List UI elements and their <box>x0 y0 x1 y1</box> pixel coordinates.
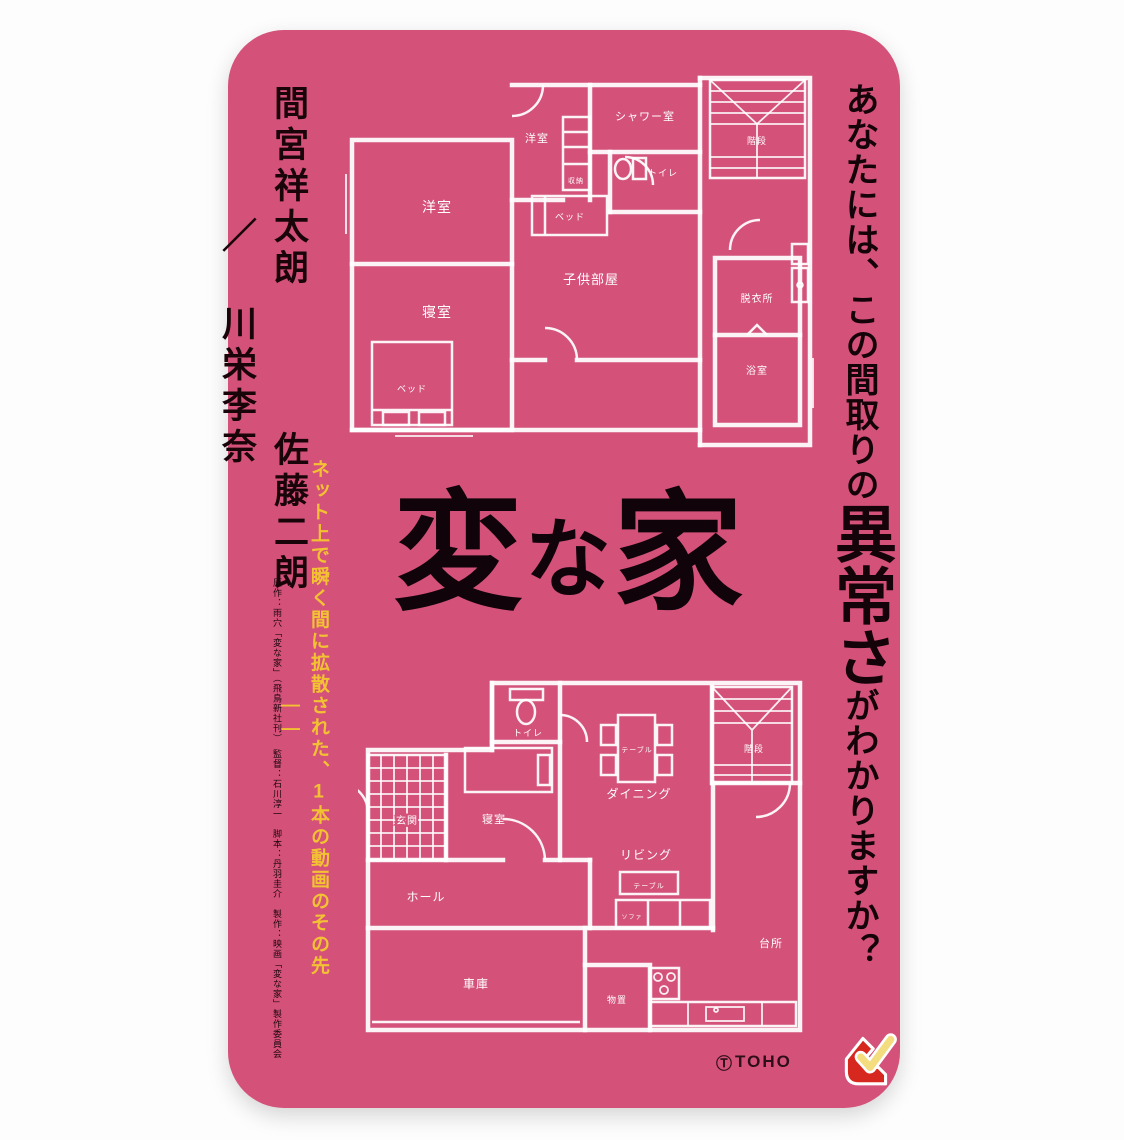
floorplan-first-floor: トイレ テーブル ダイニング 階段 玄関 寝室 ホール リビング テーブル ソフ… <box>358 670 818 1050</box>
toho-circle-t-icon: Ⓣ <box>716 1050 732 1074</box>
movie-title: 変 な 家 <box>388 478 748 628</box>
label-hall: ホール <box>406 890 445 904</box>
label-kaidan: 階段 <box>744 743 764 754</box>
floorplan-second-floor: 洋室 寝室 ベッド 洋室 収納 シャワー室 トイレ ベッド 子供部屋 階段 脱衣… <box>333 72 823 462</box>
label-yoshitsu-main: 洋室 <box>422 199 452 215</box>
label-shunou: 収納 <box>568 176 584 185</box>
label-dining: ダイニング <box>606 786 671 801</box>
bed-icon <box>465 748 552 792</box>
label-daidokoro: 台所 <box>759 936 783 950</box>
label-living: リビング <box>620 848 672 862</box>
tagline-yellow: ネット上で瞬く間に拡散された、1本の動画のその先―― <box>304 438 332 998</box>
label-shower: シャワー室 <box>615 109 675 123</box>
toilet-icon <box>510 689 543 724</box>
cast-name-2: 佐藤二朗 <box>268 431 309 595</box>
title-char-1: 変 <box>393 488 523 618</box>
tagline-right-emphasis: 異常さ <box>825 502 894 688</box>
title-char-2: な <box>525 503 611 603</box>
movieticket-check-logo <box>836 1024 898 1090</box>
stove-icon <box>650 968 679 999</box>
label-toilet: トイレ <box>513 728 543 738</box>
movie-card: あなたには、この間取りの異常さがわかりますか？ 間宮祥太朗 佐藤二朗 ／ 川栄李… <box>228 30 900 1108</box>
label-dining-table: テーブル <box>621 745 653 754</box>
tagline-right-pre: あなたには、この間取りの <box>840 82 878 502</box>
label-shinshitsu: 寝室 <box>482 812 506 826</box>
sofa-icon <box>616 900 710 928</box>
label-shako: 車庫 <box>463 977 489 991</box>
credits-text: 原作：雨穴「変な家」（飛鳥新社刊） 監督：石川淳一 脚本：丹羽圭介 製作：映画「… <box>270 578 284 1083</box>
label-bed-child: ベッド <box>555 212 585 222</box>
title-char-3: 家 <box>613 488 743 618</box>
entrance-tile-grid <box>368 755 446 860</box>
label-living-table: テーブル <box>633 881 665 890</box>
tagline-right-post: がわかりますか？ <box>840 688 878 968</box>
toho-logo: Ⓣ TOHO <box>716 1050 792 1074</box>
staircase-icon <box>710 80 805 178</box>
label-kaidan: 階段 <box>747 135 767 146</box>
label-monooki: 物置 <box>607 994 627 1005</box>
label-genkan: 玄関 <box>396 814 418 827</box>
label-kodomobeya: 子供部屋 <box>563 272 619 287</box>
kitchen-counter-icon <box>650 1002 796 1026</box>
label-toilet: トイレ <box>648 168 678 178</box>
cast-separator: ／ <box>216 217 257 252</box>
staircase-icon <box>712 687 792 783</box>
label-yoshitsu-small: 洋室 <box>525 131 549 145</box>
cast-name-1: 間宮祥太朗 <box>268 85 309 290</box>
door-arcs <box>358 715 790 860</box>
label-shinshitsu: 寝室 <box>422 304 452 320</box>
toho-logo-text: TOHO <box>735 1052 792 1072</box>
cast-gap <box>268 343 309 378</box>
tagline-right: あなたには、この間取りの異常さがわかりますか？ <box>820 60 898 990</box>
label-sofa: ソファ <box>621 914 642 921</box>
door-arcs <box>512 85 767 360</box>
label-datsuisho: 脱衣所 <box>741 292 774 305</box>
label-bed-main: ベッド <box>397 384 427 394</box>
cast-name-3: 川栄李奈 <box>216 305 257 469</box>
label-yokushitsu: 浴室 <box>746 364 768 377</box>
